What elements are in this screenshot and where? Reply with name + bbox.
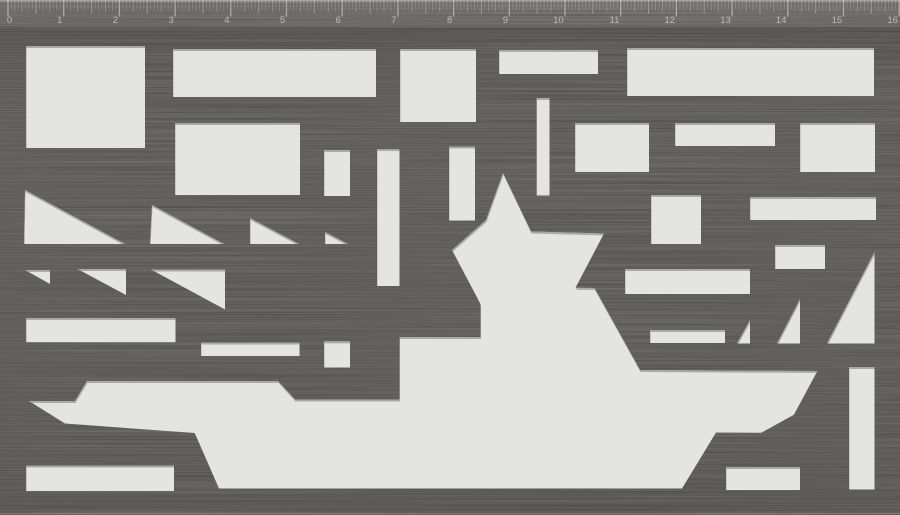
- svg-text:9: 9: [503, 15, 508, 26]
- svg-text:7: 7: [391, 15, 396, 26]
- svg-text:12: 12: [665, 15, 676, 26]
- svg-text:8: 8: [447, 15, 452, 26]
- svg-text:11: 11: [610, 15, 620, 26]
- svg-text:4: 4: [224, 15, 229, 26]
- svg-text:5: 5: [280, 15, 285, 26]
- svg-text:2: 2: [113, 15, 118, 26]
- svg-text:15: 15: [832, 15, 843, 26]
- svg-text:13: 13: [720, 15, 731, 26]
- svg-text:3: 3: [169, 15, 174, 26]
- svg-text:1: 1: [57, 15, 62, 26]
- svg-text:16: 16: [887, 15, 898, 26]
- svg-text:10: 10: [553, 15, 564, 26]
- svg-text:14: 14: [776, 15, 787, 26]
- svg-text:0: 0: [7, 15, 12, 26]
- svg-text:6: 6: [336, 15, 341, 26]
